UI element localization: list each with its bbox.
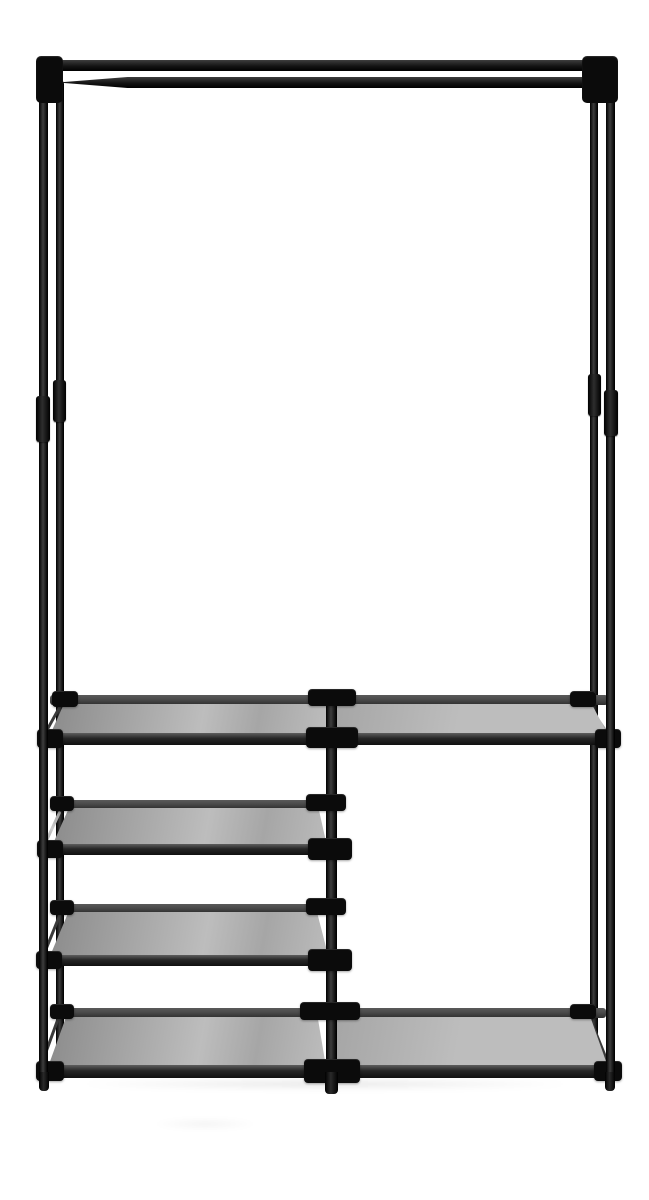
connector-shelf2-front-center <box>308 838 352 860</box>
connector-shelf2-back-center <box>306 794 346 811</box>
shelf3-front-rail <box>45 955 336 966</box>
shelf3-fabric <box>50 912 334 956</box>
connector-shelf3-back-left <box>50 900 74 915</box>
connector-shelf4-back-right <box>570 1004 596 1019</box>
leg-front-left <box>39 62 48 1090</box>
shelf4-fabric-right <box>337 1017 608 1067</box>
leg-coupler-back-right <box>588 374 601 416</box>
shelf1-fabric-left <box>50 704 327 735</box>
product-photo-canvas <box>0 0 649 1200</box>
foot-front-right <box>605 1072 615 1091</box>
floor-shadow-spot <box>150 1118 260 1130</box>
leg-front-right <box>606 62 615 1090</box>
leg-back-right <box>590 80 598 1078</box>
center-support-post <box>326 694 337 1093</box>
connector-shelf4-back-center <box>300 1002 360 1020</box>
connector-shelf1-back-left <box>52 691 78 707</box>
shelf3-back-rail <box>58 904 334 913</box>
connector-shelf4-back-left <box>50 1004 74 1019</box>
foot-center <box>325 1072 338 1094</box>
shelf2-back-rail <box>58 800 334 809</box>
leg-coupler-front-right <box>604 390 618 436</box>
connector-shelf2-back-left <box>50 796 74 811</box>
hanging-rod <box>58 77 593 88</box>
corner-joint-top-right <box>582 56 618 103</box>
top-frame-bar <box>42 60 615 71</box>
connector-shelf3-front-center <box>308 949 352 971</box>
shelf4-fabric-left <box>48 1017 326 1067</box>
connector-shelf1-back-right <box>570 691 596 707</box>
connector-shelf3-back-center <box>306 898 346 915</box>
leg-coupler-front-left <box>36 396 50 442</box>
connector-shelf1-back-center <box>308 689 356 706</box>
foot-front-left <box>39 1072 49 1091</box>
shelf1-fabric-right <box>337 704 608 735</box>
shelf2-front-rail <box>46 844 336 855</box>
garment-rack <box>0 0 649 1200</box>
connector-shelf1-front-center <box>306 727 358 748</box>
leg-coupler-back-left <box>53 380 66 422</box>
shelf2-fabric <box>52 808 334 846</box>
corner-joint-top-left <box>36 56 63 103</box>
